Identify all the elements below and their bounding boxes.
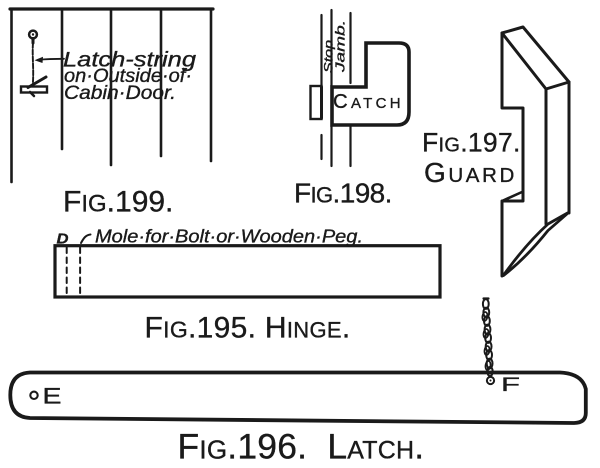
svg-text:Cabin·Door.: Cabin·Door. bbox=[64, 83, 176, 104]
svg-text:F: F bbox=[501, 375, 520, 396]
svg-text:CATCH: CATCH bbox=[333, 91, 404, 113]
svg-text:E: E bbox=[43, 384, 62, 409]
svg-text:FIG.197.: FIG.197. bbox=[422, 128, 521, 158]
svg-text:FIG.198.: FIG.198. bbox=[294, 178, 392, 209]
svg-text:FIG.199.: FIG.199. bbox=[63, 186, 173, 219]
svg-text:Jamb.: Jamb. bbox=[333, 20, 348, 73]
svg-text:Mole·for·Bolt·or·Wooden·Peg.: Mole·for·Bolt·or·Wooden·Peg. bbox=[95, 226, 363, 247]
svg-text:D: D bbox=[57, 231, 69, 248]
